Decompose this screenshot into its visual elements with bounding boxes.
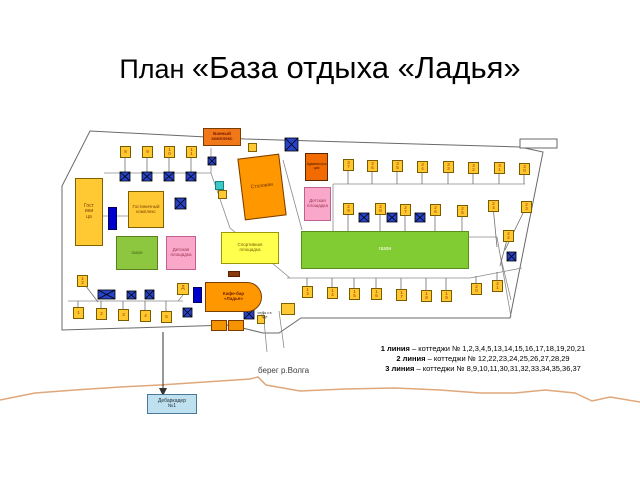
administration-building: Администрация <box>305 153 328 181</box>
cottage-27: 27 <box>400 204 411 216</box>
cottage-4: 4 <box>140 310 151 322</box>
river-bank-label: берег р.Волга <box>258 366 338 375</box>
cottage-23: 23 <box>521 201 532 213</box>
cottage-34: 34 <box>417 161 428 173</box>
cottage-number: 37 <box>347 161 351 170</box>
cottage-number: 8 <box>124 150 127 155</box>
cottage-number: 12 <box>81 277 85 286</box>
cottage-20: 20 <box>471 283 482 295</box>
cottage-number: 2 <box>100 312 103 317</box>
cottage-number: 32 <box>472 164 476 173</box>
boundary-notch <box>520 139 557 148</box>
cottage-22: 22 <box>503 230 514 242</box>
cottage-14: 14 <box>327 287 338 299</box>
cottage-number: 10 <box>168 148 172 157</box>
cottage-26: 26 <box>430 204 441 216</box>
cottage-number: 18 <box>425 292 429 301</box>
cottage-32: 32 <box>468 162 479 174</box>
sports-ground: Спортивная площадка <box>221 232 279 264</box>
blue-structure-2 <box>193 287 202 303</box>
cottage-number: 3 <box>122 313 125 318</box>
blue-structure-1 <box>108 207 117 230</box>
cottage-9: 9 <box>142 146 153 158</box>
cottage-number: 4 <box>144 314 147 319</box>
cottage-number: 31 <box>498 164 502 173</box>
cottage-35: 35 <box>392 160 403 172</box>
pier-debarcader: Дебаркадер №1 <box>147 394 197 414</box>
cottage-number: 36 <box>371 162 375 171</box>
legend-line-2-text: – коттеджи № 12,22,23,24,25,26,27,28,29 <box>426 354 570 363</box>
cottage-number: 1 <box>77 311 80 316</box>
bath-complex-building: Банный комплекс <box>203 128 241 146</box>
cottage-number: 21 <box>496 282 500 291</box>
cottage-number: 19 <box>445 292 449 301</box>
cottage-33: 33 <box>443 161 454 173</box>
cottage-19: 19 <box>441 290 452 302</box>
cottage-10: 10 <box>164 146 175 158</box>
cottage-37: 37 <box>343 159 354 171</box>
cottage-number: 27 <box>404 206 408 215</box>
playground-right: Детская площадка <box>304 187 331 221</box>
cottage-number: 23 <box>525 203 529 212</box>
cottage-24: 24 <box>488 200 499 212</box>
cottage-21: 21 <box>492 280 503 292</box>
cottage-1: 1 <box>73 307 84 319</box>
lawn-right: газон <box>301 231 469 269</box>
cottage-number: 5 <box>165 315 168 320</box>
slide: План «База отдыха «Ладья» Банный комплек… <box>0 0 640 480</box>
cottage-13: 13 <box>302 286 313 298</box>
cottage-number: 34 <box>421 163 425 172</box>
small-service-building-2 <box>228 320 244 331</box>
small-yellow-structure-2 <box>218 190 227 199</box>
cottage-number: 26 <box>434 206 438 215</box>
cottage-36: 36 <box>367 160 378 172</box>
cottage-30: 30 <box>519 163 530 175</box>
cottage-16: 16 <box>371 288 382 300</box>
cottage-number: 15 <box>353 290 357 299</box>
cafe-bar-building: Кафе-бар «Ладья» <box>205 282 262 312</box>
cottage-8: 8 <box>120 146 131 158</box>
cottage-number: 28 <box>379 205 383 214</box>
legend-line-1-text: – коттеджи № 1,2,3,4,5,13,14,15,16,17,18… <box>410 344 585 353</box>
cottage-18: 18 <box>421 290 432 302</box>
cottage-number: 24 <box>492 202 496 211</box>
cottage-number: 30 <box>523 165 527 174</box>
cottage-number: 13 <box>306 288 310 297</box>
cottage-number: 33 <box>447 163 451 172</box>
playground-left: Детская площадка <box>166 236 196 270</box>
cottage-3: 3 <box>118 309 129 321</box>
small-service-building-1 <box>211 320 227 331</box>
hotel-complex-building: Гостиничный комплекс <box>128 191 164 228</box>
d-block: Д <box>177 283 189 295</box>
small-brown-structure <box>228 271 240 277</box>
legend-line-3-bold: 3 линия <box>385 364 414 373</box>
cottage-number: 35 <box>396 162 400 171</box>
shoreline <box>0 377 640 402</box>
legend-line-1-bold: 1 линия <box>381 344 410 353</box>
cottage-2: 2 <box>96 308 107 320</box>
cottage-15: 15 <box>349 288 360 300</box>
legend-line-3-text: – коттеджи № 8,9,10,11,30,31,32,33,34,35… <box>414 364 580 373</box>
cottage-11: 11 <box>186 146 197 158</box>
small-yellow-structure-4 <box>281 303 295 315</box>
cottage-number: 11 <box>190 148 194 157</box>
cottage-5: 5 <box>161 311 172 323</box>
cyan-structure <box>215 181 224 190</box>
cottage-number: 29 <box>347 205 351 214</box>
lawn-left: газон <box>116 236 158 270</box>
cottage-number: 22 <box>507 232 511 241</box>
legend-line-2: 2 линия – коттеджи № 12,22,23,24,25,26,2… <box>352 354 614 364</box>
cottage-31: 31 <box>494 162 505 174</box>
hotel-label: Гостиница <box>84 204 95 221</box>
descent-label: спуск к воде <box>257 311 272 319</box>
cottage-number: 16 <box>375 290 379 299</box>
cottage-number: 20 <box>475 285 479 294</box>
small-yellow-structure-1 <box>248 143 257 152</box>
canteen-building: Столовая <box>237 154 286 221</box>
cottage-number: 9 <box>146 150 149 155</box>
legend-line-2-bold: 2 линия <box>396 354 425 363</box>
cottage-number: 14 <box>331 289 335 298</box>
cottage-29: 29 <box>343 203 354 215</box>
cottage-17: 17 <box>396 289 407 301</box>
legend-line-3: 3 линия – коттеджи № 8,9,10,11,30,31,32,… <box>352 364 614 374</box>
legend-line-1: 1 линия – коттеджи № 1,2,3,4,5,13,14,15,… <box>352 344 614 354</box>
cottage-25: 25 <box>457 205 468 217</box>
cottage-28: 28 <box>375 203 386 215</box>
legend: 1 линия – коттеджи № 1,2,3,4,5,13,14,15,… <box>352 344 614 374</box>
cottage-number: 17 <box>400 291 404 300</box>
cottage-12: 12 <box>77 275 88 287</box>
hotel-building: Гостиница <box>75 178 103 246</box>
cottage-number: 25 <box>461 207 465 216</box>
